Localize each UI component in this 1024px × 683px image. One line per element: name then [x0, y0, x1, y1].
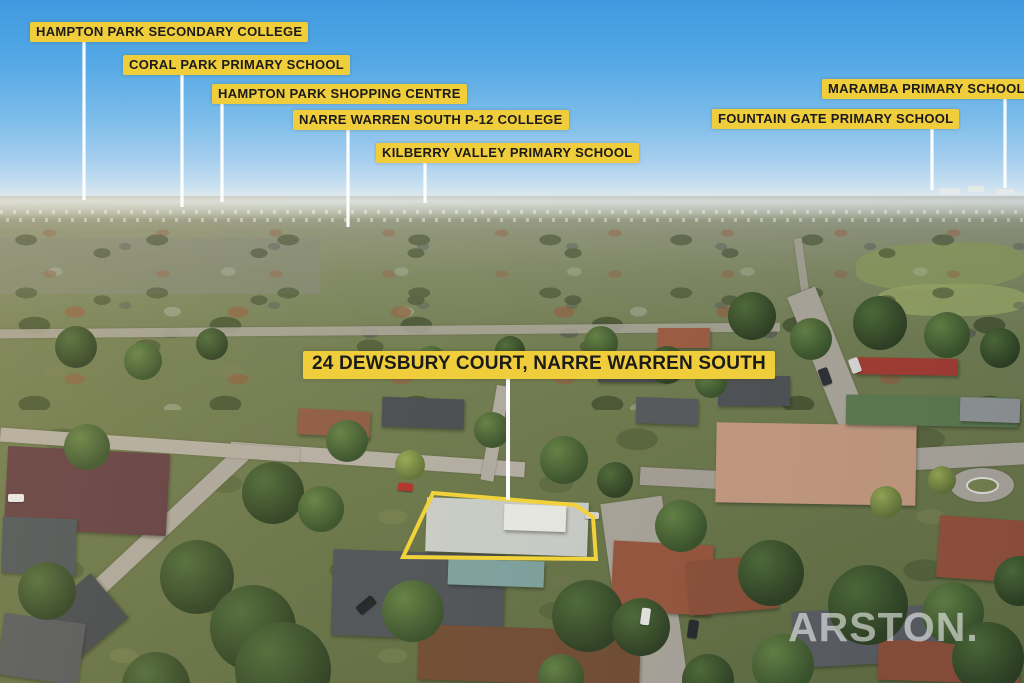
callout-coral-park-primary-school: CORAL PARK PRIMARY SCHOOL	[123, 55, 350, 75]
callout-narre-warren-south-p12-college: NARRE WARREN SOUTH P-12 COLLEGE	[293, 110, 569, 130]
distant-building	[996, 189, 1014, 194]
distant-building	[940, 188, 960, 194]
callout-hampton-park-shopping-centre: HAMPTON PARK SHOPPING CENTRE	[212, 84, 467, 104]
aerial-property-photo: HAMPTON PARK SECONDARY COLLEGECORAL PARK…	[0, 0, 1024, 683]
photo-background	[0, 0, 1024, 683]
callout-kilberry-valley-primary-school: KILBERRY VALLEY PRIMARY SCHOOL	[376, 143, 639, 163]
callout-fountain-gate-primary-school: FOUNTAIN GATE PRIMARY SCHOOL	[712, 109, 959, 129]
brand-watermark: ARSTON.	[788, 604, 979, 651]
distant-building	[968, 186, 984, 192]
property-address-label: 24 DEWSBURY COURT, NARRE WARREN SOUTH	[303, 351, 775, 379]
callout-hampton-park-secondary-college: HAMPTON PARK SECONDARY COLLEGE	[30, 22, 308, 42]
callout-maramba-primary-school: MARAMBA PRIMARY SCHOOL	[822, 79, 1024, 99]
